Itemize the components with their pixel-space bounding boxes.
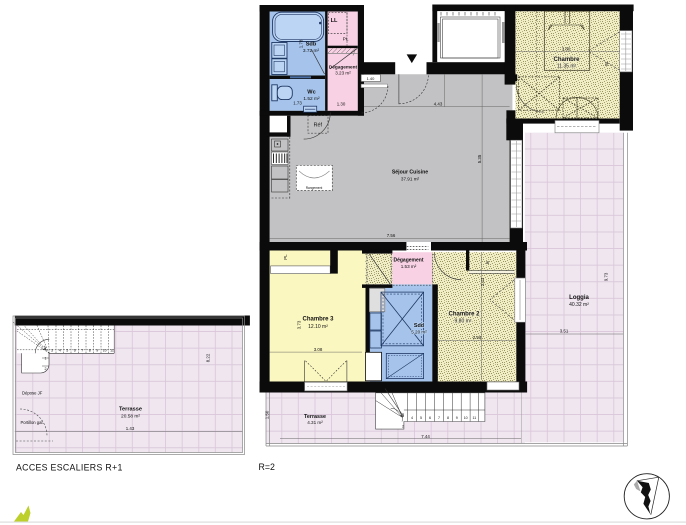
- svg-text:M: M: [604, 62, 609, 66]
- svg-text:11.35 m²: 11.35 m²: [557, 64, 577, 70]
- svg-text:Wc: Wc: [307, 90, 315, 96]
- svg-text:6: 6: [429, 416, 431, 420]
- svg-text:3.08: 3.08: [314, 347, 323, 352]
- svg-text:4: 4: [59, 349, 61, 353]
- svg-text:Portillon gal.: Portillon gal.: [21, 420, 44, 425]
- svg-text:Loggia: Loggia: [569, 295, 589, 301]
- svg-text:5: 5: [420, 416, 422, 420]
- svg-text:Sdd: Sdd: [414, 323, 424, 329]
- svg-text:1.30: 1.30: [337, 102, 346, 107]
- svg-text:3.73: 3.73: [297, 320, 302, 329]
- svg-text:12.10 m²: 12.10 m²: [308, 324, 328, 330]
- svg-text:Réf: Réf: [314, 123, 323, 129]
- svg-text:9: 9: [456, 416, 458, 420]
- svg-text:5.35: 5.35: [477, 154, 482, 163]
- svg-text:5: 5: [66, 349, 68, 353]
- svg-text:Chambre 2: Chambre 2: [448, 312, 480, 318]
- svg-text:Chambre 3: Chambre 3: [302, 317, 334, 323]
- svg-text:1.40: 1.40: [367, 76, 376, 81]
- svg-text:B: B: [485, 261, 490, 264]
- svg-text:8: 8: [89, 349, 91, 353]
- svg-text:PL: PL: [343, 37, 349, 43]
- svg-text:Dépose JF: Dépose JF: [22, 391, 43, 396]
- svg-text:3.51: 3.51: [560, 329, 569, 334]
- svg-text:3.80: 3.80: [562, 46, 571, 51]
- svg-text:1.78: 1.78: [299, 39, 304, 48]
- svg-text:PL: PL: [283, 254, 288, 260]
- svg-text:7.44: 7.44: [421, 434, 430, 439]
- svg-text:Dégagement: Dégagement: [393, 258, 423, 264]
- svg-text:2.93: 2.93: [473, 335, 482, 340]
- svg-text:7: 7: [81, 349, 83, 353]
- svg-text:Chambre: Chambre: [553, 57, 580, 63]
- svg-text:R=2: R=2: [259, 462, 275, 472]
- svg-text:2: 2: [45, 367, 47, 371]
- svg-text:10: 10: [464, 416, 468, 420]
- svg-text:Séjour Cuisine: Séjour Cuisine: [392, 170, 428, 176]
- svg-text:2: 2: [402, 425, 404, 429]
- svg-text:6: 6: [74, 349, 76, 353]
- svg-text:5.20 m²: 5.20 m²: [411, 330, 427, 335]
- svg-text:11: 11: [110, 349, 114, 353]
- svg-text:8.22: 8.22: [206, 353, 211, 362]
- svg-text:1.53 m²: 1.53 m²: [401, 264, 417, 269]
- svg-text:Dégagement: Dégagement: [329, 65, 358, 70]
- svg-text:11: 11: [473, 416, 477, 420]
- svg-text:LL: LL: [331, 18, 338, 24]
- svg-text:37.91 m²: 37.91 m²: [401, 177, 420, 182]
- svg-text:1.52 m²: 1.52 m²: [303, 96, 320, 102]
- svg-text:3.23 m²: 3.23 m²: [335, 71, 351, 76]
- svg-text:1.43: 1.43: [126, 426, 135, 431]
- svg-text:4.43: 4.43: [434, 102, 443, 107]
- svg-text:7: 7: [438, 416, 440, 420]
- svg-text:3: 3: [51, 349, 53, 353]
- svg-text:40.32 m²: 40.32 m²: [569, 302, 589, 308]
- svg-text:20.58 m²: 20.58 m²: [121, 414, 140, 420]
- svg-text:1: 1: [45, 357, 47, 361]
- svg-text:Terrasse: Terrasse: [119, 407, 142, 413]
- svg-text:1.50: 1.50: [265, 410, 270, 419]
- svg-text:Rangement: Rangement: [306, 186, 323, 190]
- svg-text:7.56: 7.56: [387, 233, 396, 238]
- svg-text:4: 4: [411, 416, 413, 420]
- svg-text:Sdb: Sdb: [306, 42, 317, 48]
- svg-text:4.31 m²: 4.31 m²: [307, 420, 323, 425]
- svg-text:3.72 m²: 3.72 m²: [303, 48, 320, 54]
- svg-text:1.73: 1.73: [293, 101, 302, 106]
- svg-text:10: 10: [103, 349, 107, 353]
- svg-text:9.73: 9.73: [604, 272, 609, 281]
- svg-text:8: 8: [447, 416, 449, 420]
- svg-text:9: 9: [96, 349, 98, 353]
- svg-text:3.23: 3.23: [480, 277, 485, 286]
- svg-text:9.80 m²: 9.80 m²: [455, 319, 472, 325]
- svg-text:ACCES ESCALIERS R+1: ACCES ESCALIERS R+1: [16, 462, 123, 472]
